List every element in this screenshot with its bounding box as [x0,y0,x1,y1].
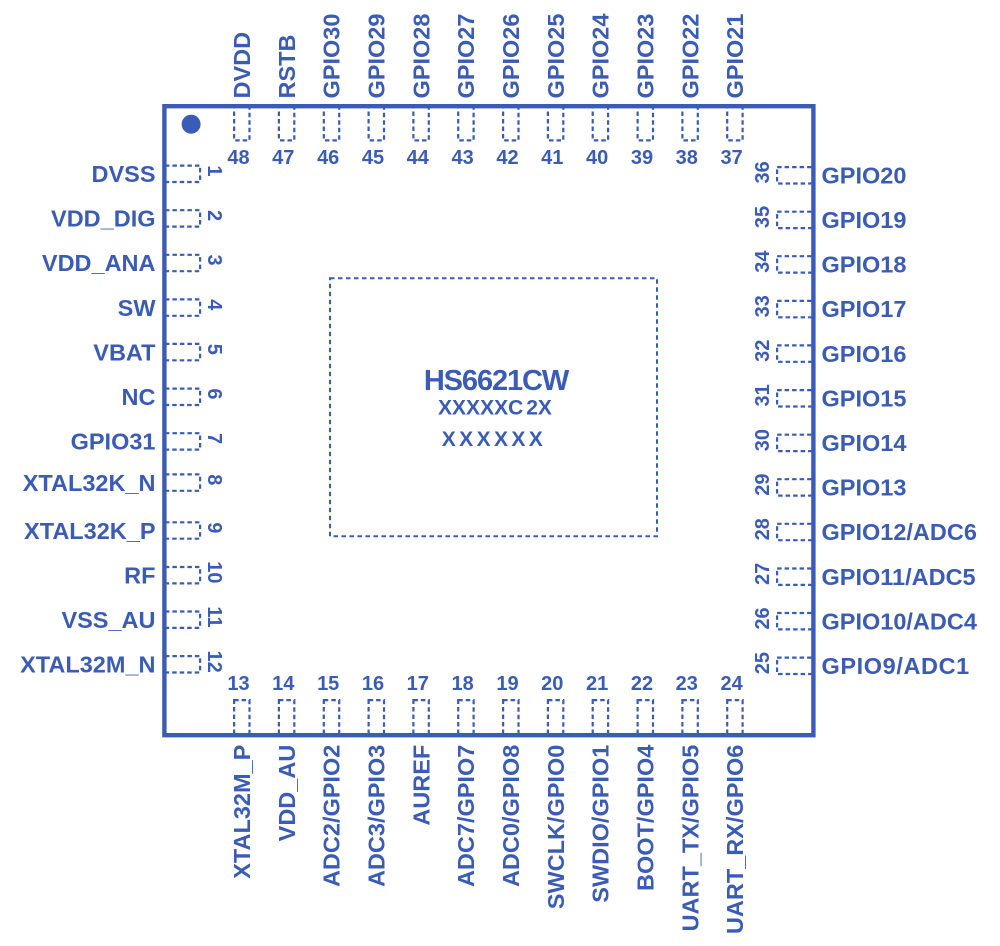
svg-text:19: 19 [496,673,518,695]
svg-text:AUREF: AUREF [408,745,434,826]
svg-text:NC: NC [122,384,156,410]
svg-text:BOOT/GPIO4: BOOT/GPIO4 [633,745,659,891]
svg-text:GPIO26: GPIO26 [498,14,524,99]
svg-text:33: 33 [752,295,774,317]
svg-text:GPIO20: GPIO20 [822,162,907,188]
svg-text:GPIO25: GPIO25 [543,14,569,99]
svg-text:GPIO27: GPIO27 [453,14,479,99]
svg-text:38: 38 [676,147,698,169]
svg-text:RF: RF [124,562,155,588]
svg-text:SW: SW [118,295,157,321]
svg-text:XXXXXX: XXXXXX [442,428,546,451]
svg-text:VBAT: VBAT [93,339,156,365]
svg-text:21: 21 [586,673,608,695]
svg-text:30: 30 [752,429,774,451]
svg-text:1: 1 [203,165,225,176]
svg-text:20: 20 [541,673,563,695]
svg-text:GPIO11/ADC5: GPIO11/ADC5 [822,564,976,590]
svg-text:43: 43 [451,147,473,169]
svg-text:SWCLK/GPIO0: SWCLK/GPIO0 [543,745,569,910]
svg-text:GPIO14: GPIO14 [822,430,907,456]
svg-text:39: 39 [631,147,653,169]
svg-text:ADC2/GPIO2: ADC2/GPIO2 [319,745,345,887]
svg-text:22: 22 [631,673,653,695]
svg-text:29: 29 [752,473,774,495]
svg-text:35: 35 [752,206,774,228]
svg-text:RSTB: RSTB [274,35,300,99]
svg-text:15: 15 [317,673,339,695]
svg-text:UART_RX/GPIO6: UART_RX/GPIO6 [722,745,748,934]
svg-text:4: 4 [203,299,225,311]
svg-text:HS6621CW: HS6621CW [424,365,570,397]
svg-text:16: 16 [362,673,384,695]
svg-text:34: 34 [752,250,774,273]
svg-text:XTAL32K_N: XTAL32K_N [23,470,156,496]
svg-text:GPIO29: GPIO29 [364,14,390,99]
svg-text:13: 13 [227,673,249,695]
svg-text:10: 10 [203,561,225,583]
svg-text:41: 41 [541,147,563,169]
svg-text:XXXXXC2X: XXXXXC2X [438,397,552,420]
svg-text:GPIO9/ADC1: GPIO9/ADC1 [822,653,970,679]
svg-text:23: 23 [676,673,698,695]
svg-text:UART_TX/GPIO5: UART_TX/GPIO5 [677,745,703,932]
svg-text:42: 42 [496,147,518,169]
svg-text:7: 7 [203,433,225,444]
svg-text:25: 25 [752,652,774,674]
svg-text:36: 36 [752,161,774,183]
svg-text:GPIO12/ADC6: GPIO12/ADC6 [822,519,977,545]
svg-text:GPIO18: GPIO18 [822,252,907,278]
svg-text:12: 12 [203,650,225,672]
svg-text:3: 3 [203,255,225,266]
svg-text:GPIO28: GPIO28 [408,14,434,99]
svg-text:32: 32 [752,340,774,362]
svg-text:GPIO21: GPIO21 [722,14,748,99]
svg-text:DVSS: DVSS [92,161,156,187]
svg-text:GPIO13: GPIO13 [822,475,907,501]
svg-text:28: 28 [752,518,774,540]
svg-text:47: 47 [272,147,294,169]
svg-text:ADC7/GPIO7: ADC7/GPIO7 [453,745,479,887]
svg-text:27: 27 [752,563,774,585]
svg-text:ADC0/GPIO8: ADC0/GPIO8 [498,745,524,887]
svg-text:8: 8 [203,474,225,485]
svg-text:37: 37 [720,147,742,169]
svg-text:24: 24 [720,673,743,695]
svg-text:ADC3/GPIO3: ADC3/GPIO3 [364,745,390,887]
svg-text:DVDD: DVDD [229,32,255,99]
svg-text:14: 14 [272,673,295,695]
svg-text:GPIO16: GPIO16 [822,341,907,367]
svg-text:9: 9 [203,522,225,533]
svg-text:XTAL32M_P: XTAL32M_P [229,745,255,879]
svg-text:GPIO19: GPIO19 [822,207,907,233]
svg-text:GPIO17: GPIO17 [822,296,907,322]
svg-text:31: 31 [752,384,774,406]
svg-text:GPIO31: GPIO31 [71,429,156,455]
svg-text:GPIO30: GPIO30 [319,14,345,99]
svg-text:44: 44 [407,147,430,169]
svg-text:XTAL32M_N: XTAL32M_N [20,652,155,678]
svg-text:5: 5 [203,344,225,355]
svg-text:SWDIO/GPIO1: SWDIO/GPIO1 [588,745,614,903]
svg-text:XTAL32K_P: XTAL32K_P [24,518,155,544]
svg-text:40: 40 [586,147,608,169]
svg-text:GPIO23: GPIO23 [633,14,659,99]
svg-text:GPIO24: GPIO24 [588,14,614,99]
svg-text:VSS_AU: VSS_AU [61,607,155,633]
svg-text:6: 6 [203,388,225,399]
svg-text:18: 18 [451,673,473,695]
svg-text:GPIO22: GPIO22 [677,14,703,99]
svg-text:VDD_DIG: VDD_DIG [51,206,155,232]
svg-text:17: 17 [407,673,429,695]
svg-text:26: 26 [752,607,774,629]
svg-text:48: 48 [227,147,249,169]
svg-text:VDD_AU: VDD_AU [274,745,300,842]
svg-text:VDD_ANA: VDD_ANA [42,250,156,276]
svg-text:45: 45 [362,147,384,169]
svg-text:GPIO15: GPIO15 [822,385,907,411]
svg-text:46: 46 [317,147,339,169]
svg-text:11: 11 [203,606,225,627]
svg-text:GPIO10/ADC4: GPIO10/ADC4 [822,609,977,635]
svg-text:2: 2 [203,210,225,221]
